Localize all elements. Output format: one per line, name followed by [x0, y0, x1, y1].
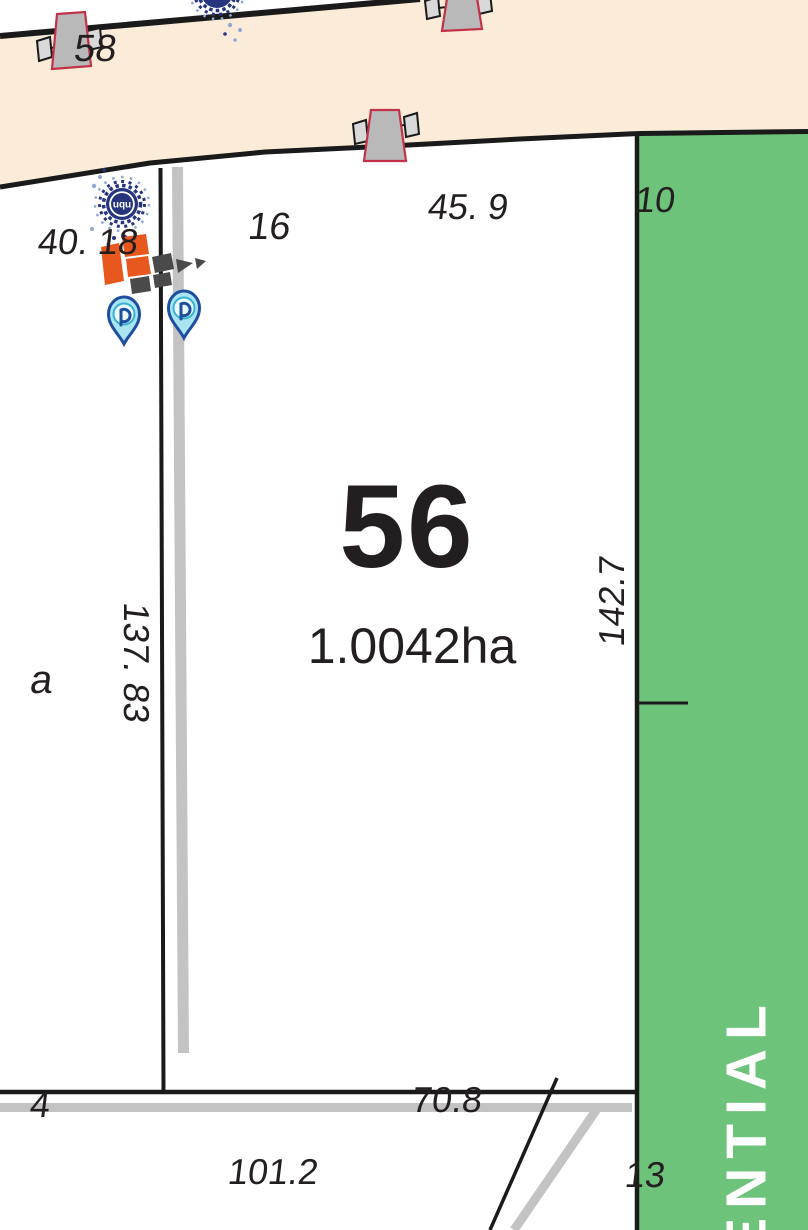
- lot-area: 1.0042ha: [308, 621, 517, 671]
- dimension-east-boundary: 142.7: [594, 554, 630, 649]
- label-10: 10: [593, 146, 673, 254]
- diagonal-boundary-line: [490, 1078, 557, 1230]
- partial-dimension-4: 4: [0, 1051, 48, 1159]
- dimension-road-bottom: 101.2: [186, 1118, 316, 1226]
- neighbor-lot-label-13: 13: [583, 1121, 663, 1229]
- neighbor-lot-label-58: 58: [30, 0, 115, 106]
- dimension-road-frontage: 45. 9: [386, 153, 506, 261]
- p-map-pin-icon[interactable]: [109, 297, 140, 344]
- path-label-16: 16: [204, 170, 289, 284]
- dimension-south-boundary: 70.8: [370, 1046, 480, 1154]
- dimension-road-left: 40. 18: [0, 188, 136, 296]
- lot-number: 56: [339, 468, 474, 586]
- lot-west-boundary-line: [161, 168, 164, 1092]
- partial-area-a: a: [0, 620, 51, 740]
- zone-label-residential: ENTIAL: [719, 996, 776, 1230]
- lot-plan-map: uqu: [0, 0, 808, 1230]
- dimension-west-boundary: 137. 83: [118, 601, 154, 726]
